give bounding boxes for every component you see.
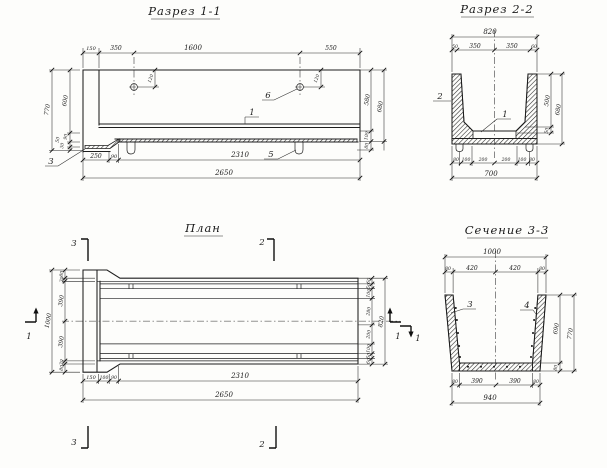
dim-90-left: 90 (63, 133, 70, 140)
callout-3: 3 (48, 157, 53, 167)
dim-250: 250 (89, 153, 102, 160)
dim-120-right: 120 (313, 73, 322, 83)
rebar-dot (534, 307, 536, 309)
view-section-2-2: Разрез 2-2 50 350 350 60 820 500 680 50 … (433, 2, 565, 181)
hole-centerlines (129, 57, 305, 97)
marker-2: 2 (436, 92, 442, 102)
dim-t420a: 420 (465, 265, 478, 272)
rebar-dot (467, 366, 469, 368)
dim-690: 690 (552, 322, 561, 335)
rebar-dot (458, 345, 460, 347)
marker-1-right: 1 (395, 332, 400, 342)
dim-2310: 2310 (230, 151, 249, 159)
dim-550: 550 (325, 45, 337, 52)
dim-150: 150 (86, 46, 96, 52)
dim-2650: 2650 (214, 169, 233, 177)
dim-90-bottom: 90 (111, 154, 118, 160)
section-arrowheads (33, 308, 392, 314)
dim-t80b: 80 (539, 266, 545, 272)
dim-r50a: 50 (366, 283, 373, 290)
slab-hatch (460, 363, 533, 371)
dim-r200: 200 (365, 329, 373, 340)
anchor-hooks (127, 142, 303, 154)
dim-80-right: 80 (364, 142, 371, 149)
dim-350a: 350 (469, 43, 481, 50)
rebar-dot (480, 366, 482, 368)
rebar-dot (530, 356, 532, 358)
dim-100-right: 100 (363, 131, 370, 141)
rebar-dot (456, 319, 458, 321)
dim-1000: 1000 (483, 248, 501, 256)
dim-100: 100 (100, 375, 109, 381)
rebar-dot (457, 332, 459, 334)
dim-b80a: 80 (453, 157, 459, 163)
marker-1-left: 1 (26, 332, 31, 342)
callout-1: 1 (249, 108, 254, 118)
dim-60: 60 (531, 44, 537, 50)
callout-leaders (451, 309, 536, 314)
marker-3-bottom: 3 (71, 438, 76, 448)
dim-680: 680 (376, 100, 385, 113)
dim-350: 350 (110, 45, 122, 52)
view-title: Сечение 3-3 (465, 223, 550, 237)
dim-500: 500 (543, 94, 552, 107)
view-section-3-3: Сечение 3-3 1000 80 420 42 (400, 223, 577, 406)
dim-1600: 1600 (184, 44, 202, 52)
drawing-canvas: Разрез 1-1 150 350 1600 550 120 120 770 … (0, 0, 607, 468)
callout-4: 4 (523, 301, 529, 311)
bottom-plate-hatch (120, 139, 357, 142)
dim-b390b: 390 (509, 378, 521, 385)
dim-r100b: 100 (365, 344, 372, 354)
dim-b100a: 100 (462, 157, 471, 163)
dim-r60b: 60 (366, 358, 373, 365)
view-title: Разрез 2-2 (459, 2, 533, 16)
corner-detail-hatch (85, 139, 119, 149)
marker-2-bottom: 2 (258, 440, 264, 450)
dim-30-left: 30 (59, 142, 66, 149)
dim-90: 90 (111, 375, 117, 381)
dim-b80b: 80 (529, 157, 535, 163)
marker-3-top: 3 (71, 239, 76, 249)
dim-150: 150 (86, 375, 96, 381)
rebar-dot (519, 366, 521, 368)
rebar-dot (493, 366, 495, 368)
dim-50-left: 50 (55, 136, 62, 143)
dim-l30a: 30 (59, 276, 66, 283)
rebar-dot (455, 307, 457, 309)
callout-leaders (433, 101, 511, 132)
rebar-dot (531, 345, 533, 347)
dimension-lines (49, 48, 387, 181)
dim-b80a: 80 (452, 379, 458, 385)
view-title: План (184, 221, 221, 235)
dim-r100a: 100 (365, 288, 372, 298)
dim-r280: 280 (365, 306, 373, 317)
dim-80-right: 80 (553, 364, 560, 371)
dim-b200b: 200 (501, 157, 511, 163)
callout-3: 3 (467, 300, 472, 310)
marker-1: 1 (415, 334, 420, 344)
dim-680: 680 (554, 103, 563, 116)
dim-50-right: 50 (544, 127, 551, 134)
rebar-dot (506, 366, 508, 368)
dim-t80a: 80 (445, 266, 451, 272)
dim-b100b: 100 (518, 157, 527, 163)
dim-700: 700 (484, 170, 498, 178)
view-title: Разрез 1-1 (147, 4, 221, 18)
dim-b390a: 390 (471, 378, 483, 385)
dim-l390b: 390 (57, 335, 66, 348)
dim-350b: 350 (506, 43, 518, 50)
dim-b80b: 80 (533, 379, 539, 385)
marker-1-arrowhead (408, 332, 413, 338)
rebar-dot (532, 332, 534, 334)
dim-l390a: 390 (57, 294, 66, 307)
dim-770: 770 (43, 103, 52, 116)
drawing-sheet: Разрез 1-1 150 350 1600 550 120 120 770 … (0, 0, 607, 468)
dim-600: 600 (61, 94, 70, 107)
dim-50: 50 (452, 44, 458, 50)
dim-2650: 2650 (214, 391, 233, 399)
callout-1: 1 (502, 110, 507, 120)
view-section-1-1: Разрез 1-1 150 350 1600 550 120 120 770 … (43, 4, 387, 181)
dim-580: 580 (363, 93, 372, 106)
dim-2310: 2310 (230, 372, 249, 380)
section-marker-lines (25, 239, 401, 448)
callout-5: 5 (268, 150, 273, 160)
dim-120-left: 120 (147, 73, 156, 83)
dim-820: 820 (377, 315, 386, 328)
dim-l80b: 80 (59, 365, 66, 372)
marker-2-top: 2 (258, 238, 264, 248)
rebar-dot (533, 319, 535, 321)
dim-940: 940 (483, 394, 497, 402)
dim-t420b: 420 (508, 265, 521, 272)
rebar-dot (459, 356, 461, 358)
view-plan: План 1000 80 30 390 390 30 80 820 60 50 … (25, 221, 401, 450)
callout-6: 6 (265, 91, 271, 101)
dim-770: 770 (566, 327, 575, 340)
dim-820: 820 (483, 28, 497, 36)
dim-b200a: 200 (478, 157, 488, 163)
